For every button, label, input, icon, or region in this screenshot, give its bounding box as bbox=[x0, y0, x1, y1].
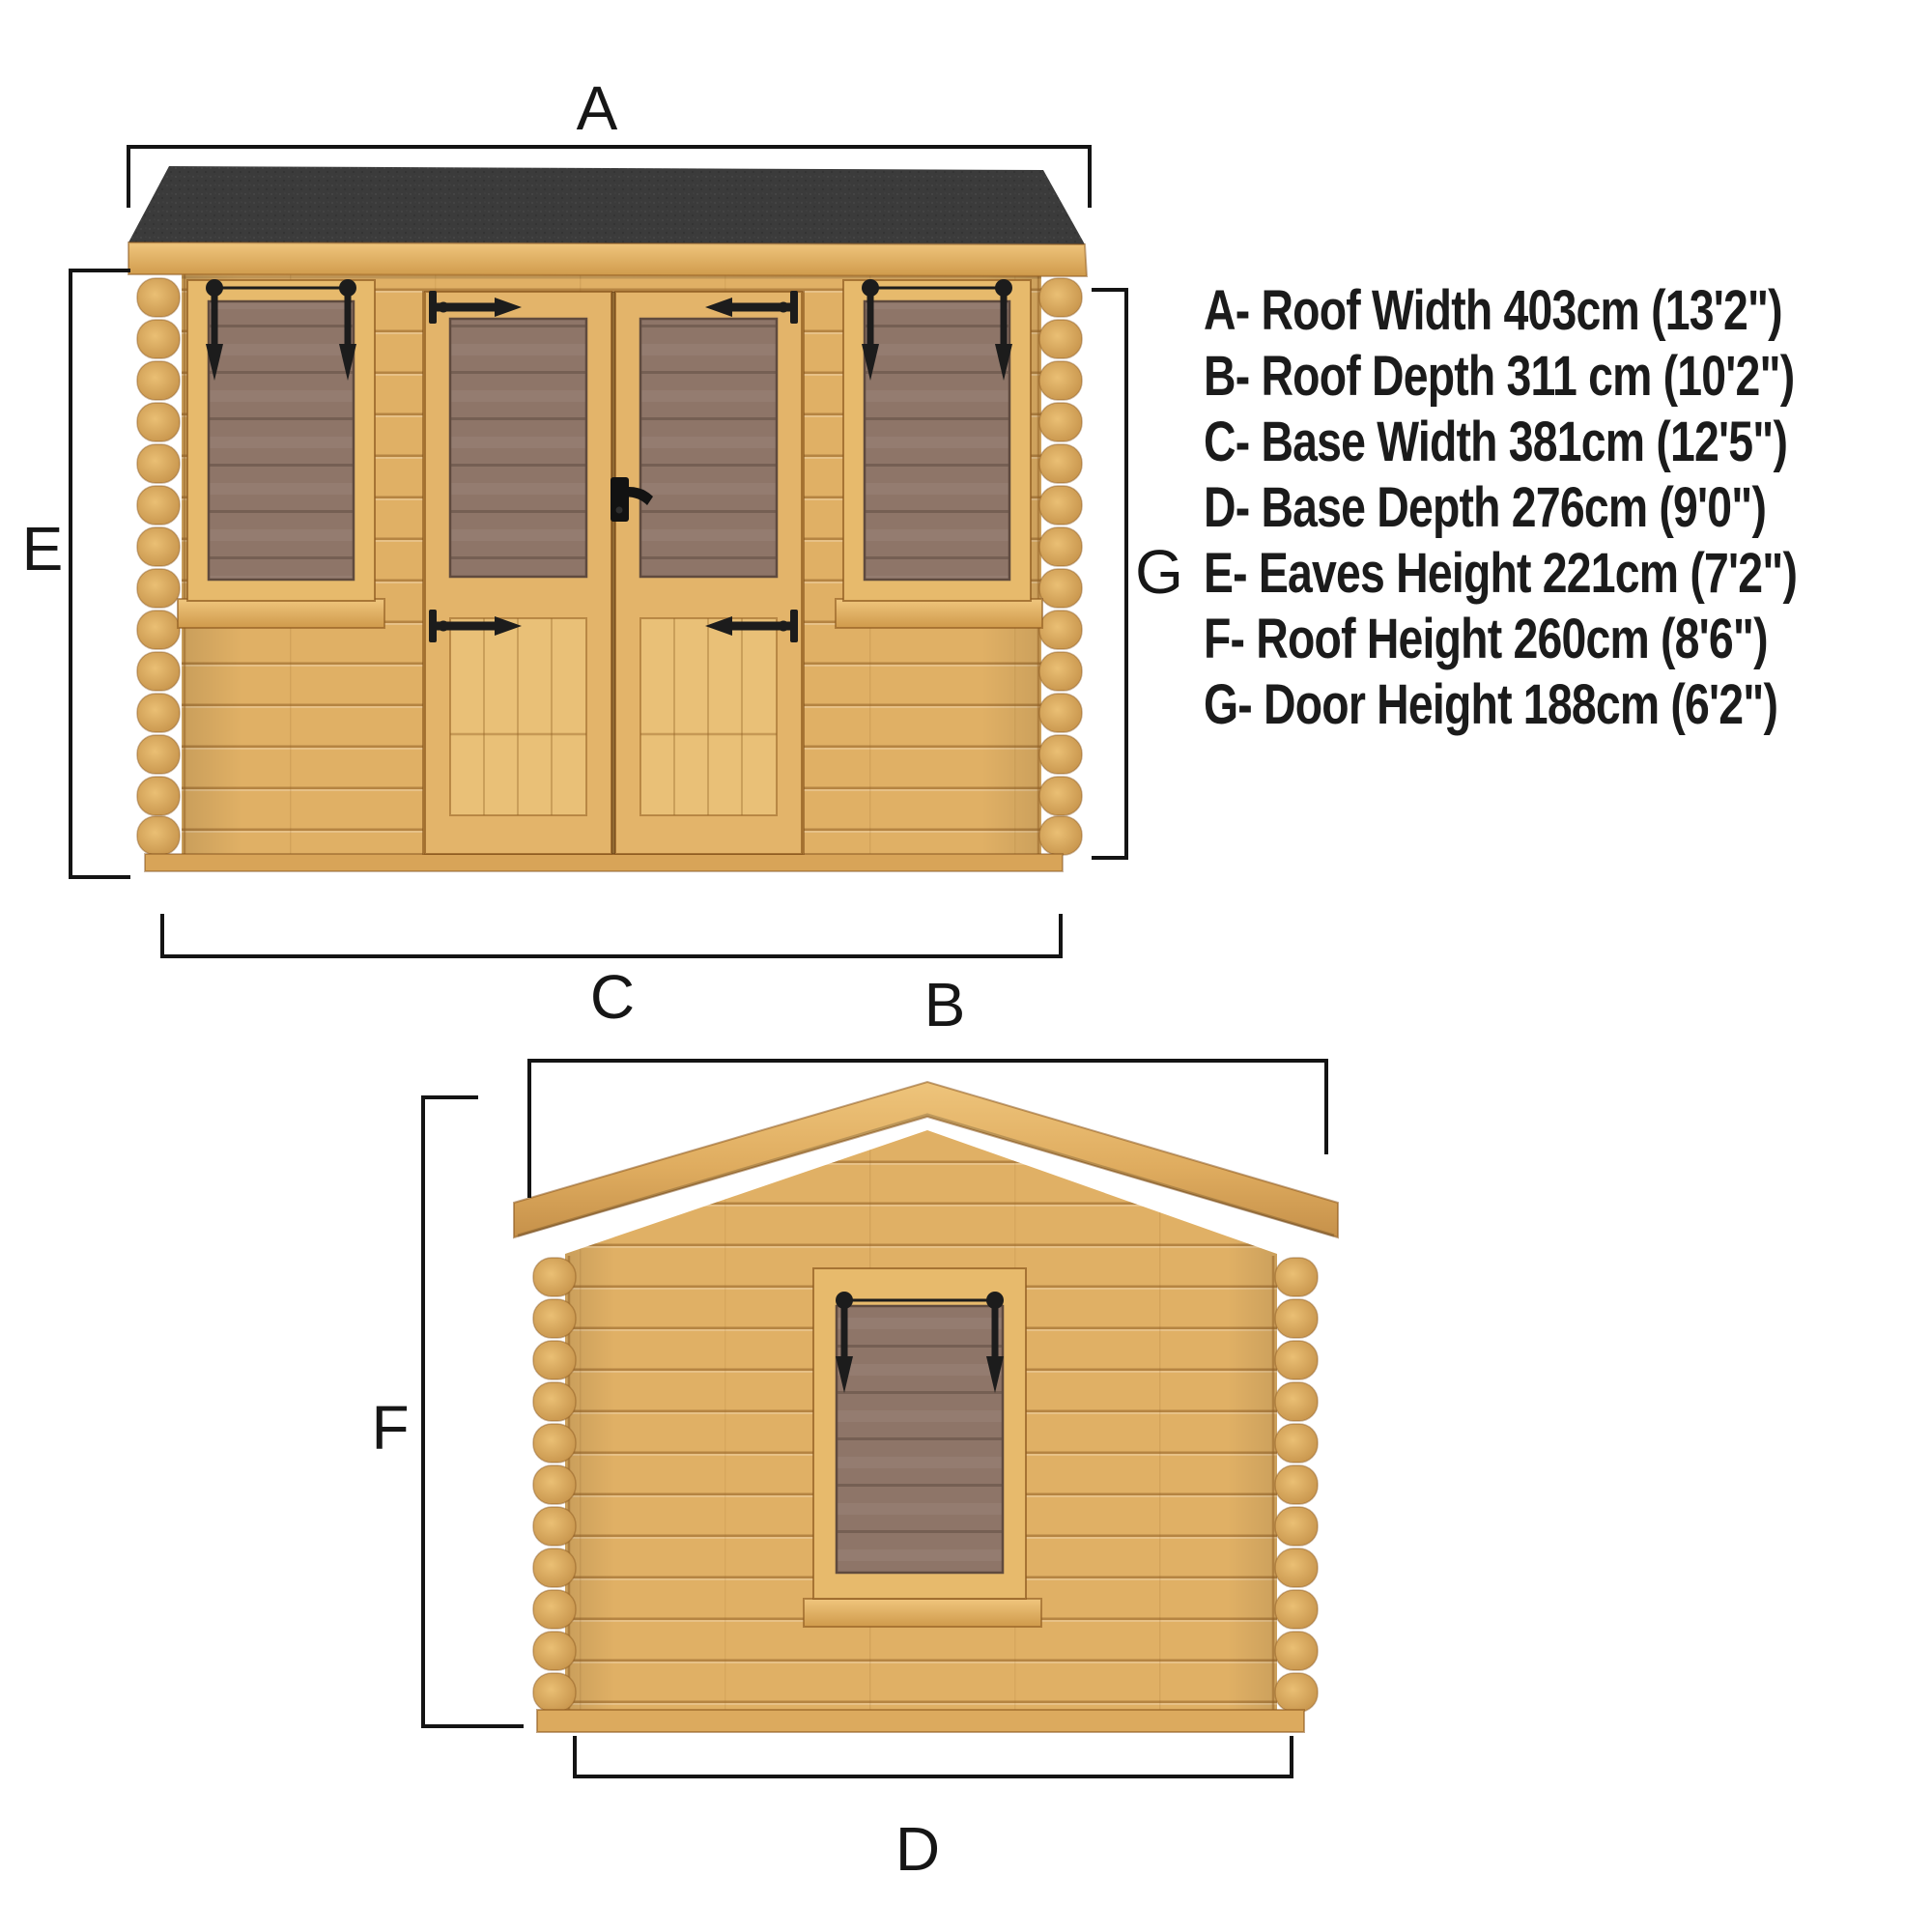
door-leaf-right bbox=[615, 291, 802, 854]
dimension-diagram: A E G C bbox=[0, 0, 1932, 1932]
window-glass bbox=[865, 301, 1009, 580]
front-right-window bbox=[836, 279, 1042, 628]
legend-line-a: A- Roof Width 403cm (13'2") bbox=[1204, 278, 1797, 344]
door-leaf-left bbox=[425, 291, 611, 854]
window-glass bbox=[837, 1306, 1003, 1573]
dimension-line-f bbox=[423, 1097, 524, 1726]
dimension-label-e: E bbox=[22, 514, 64, 583]
front-log-ends-left bbox=[137, 278, 180, 855]
front-roof-felt bbox=[128, 166, 1085, 244]
legend-line-b: B- Roof Depth 311 cm (10'2") bbox=[1204, 344, 1797, 410]
window-sill bbox=[178, 599, 384, 628]
window-glass bbox=[209, 301, 354, 580]
legend-line-d: D- Base Depth 276cm (9'0") bbox=[1204, 475, 1797, 541]
dimension-label-c: C bbox=[590, 962, 635, 1032]
front-double-doors bbox=[423, 291, 804, 854]
dimension-label-f: F bbox=[371, 1393, 409, 1463]
front-floor-edge bbox=[145, 854, 1063, 871]
front-log-ends-right bbox=[1039, 278, 1082, 855]
dimension-legend: A- Roof Width 403cm (13'2") B- Roof Dept… bbox=[1204, 278, 1797, 738]
dimension-label-d: D bbox=[895, 1814, 940, 1884]
dimension-label-a: A bbox=[577, 73, 618, 143]
dimension-label-b: B bbox=[924, 970, 966, 1039]
dimension-line-c bbox=[162, 914, 1061, 956]
side-log-ends-left bbox=[533, 1258, 576, 1712]
front-elevation-view: A E G C bbox=[22, 73, 1183, 1032]
legend-line-f: F- Roof Height 260cm (8'6") bbox=[1204, 607, 1797, 672]
door-meeting-gap bbox=[611, 292, 615, 854]
dimension-line-e bbox=[71, 270, 130, 877]
legend-line-g: G- Door Height 188cm (6'2") bbox=[1204, 672, 1797, 738]
door-glass bbox=[450, 319, 586, 577]
door-glass bbox=[640, 319, 777, 577]
side-floor-edge bbox=[537, 1710, 1304, 1732]
legend-line-e: E- Eaves Height 221cm (7'2") bbox=[1204, 541, 1797, 607]
legend-line-c: C- Base Width 381cm (12'5") bbox=[1204, 410, 1797, 475]
window-sill bbox=[836, 599, 1042, 628]
side-elevation-view: B F D bbox=[371, 970, 1338, 1884]
side-log-ends-right bbox=[1275, 1258, 1318, 1712]
dimension-line-d bbox=[575, 1736, 1292, 1776]
side-window bbox=[804, 1268, 1041, 1627]
window-sill bbox=[804, 1599, 1041, 1627]
front-left-window bbox=[178, 279, 384, 628]
dimension-line-g bbox=[1092, 290, 1126, 858]
front-roof-fascia bbox=[128, 242, 1087, 276]
dimension-label-g: G bbox=[1135, 537, 1183, 607]
